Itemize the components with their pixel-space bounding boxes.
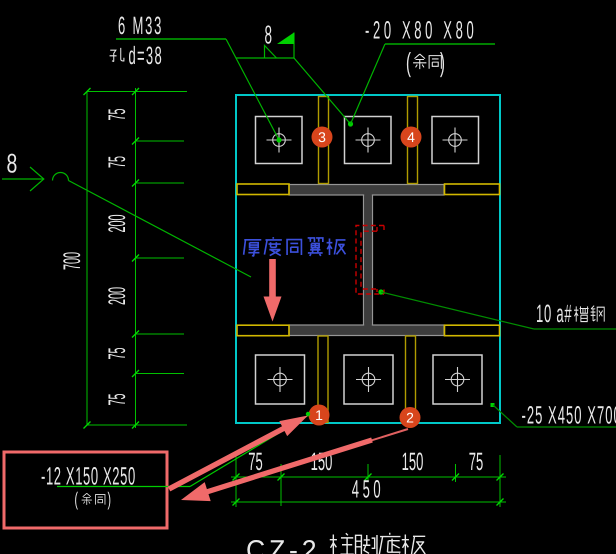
svg-text:8: 8 <box>265 20 273 50</box>
svg-text:1: 1 <box>315 407 323 423</box>
svg-text:(: ( <box>75 490 79 511</box>
svg-text:d=38: d=38 <box>129 42 163 70</box>
svg-text:700: 700 <box>59 252 86 270</box>
svg-text:200: 200 <box>104 287 131 305</box>
svg-text:75: 75 <box>469 448 483 476</box>
svg-text:-25 X450 X700: -25 X450 X700 <box>522 402 616 430</box>
svg-text:): ) <box>440 48 445 78</box>
svg-text:150: 150 <box>402 448 424 476</box>
svg-text:4: 4 <box>407 129 415 145</box>
svg-text:450: 450 <box>352 476 385 504</box>
svg-text:75: 75 <box>104 393 131 405</box>
svg-text:10 a#: 10 a# <box>536 300 572 328</box>
svg-text:-20 X80 X80: -20 X80 X80 <box>365 17 477 45</box>
svg-text:2: 2 <box>406 410 414 426</box>
svg-text:6 M33: 6 M33 <box>118 12 163 40</box>
svg-text:200: 200 <box>104 214 131 232</box>
svg-text:(: ( <box>406 48 411 78</box>
svg-text:75: 75 <box>248 448 262 476</box>
svg-text:8: 8 <box>7 149 18 179</box>
svg-text:): ) <box>108 490 111 511</box>
svg-text:75: 75 <box>104 156 131 168</box>
svg-text:75: 75 <box>104 347 131 359</box>
svg-text:75: 75 <box>104 108 131 120</box>
svg-text:3: 3 <box>318 129 326 145</box>
svg-text:CZ-2: CZ-2 <box>246 535 320 554</box>
